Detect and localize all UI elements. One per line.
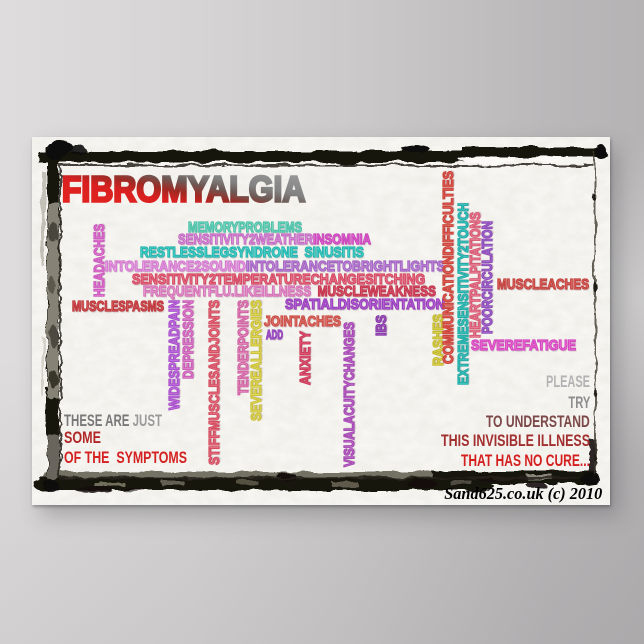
svg-text:FIBROMYALGIA: FIBROMYALGIA [62,170,306,210]
